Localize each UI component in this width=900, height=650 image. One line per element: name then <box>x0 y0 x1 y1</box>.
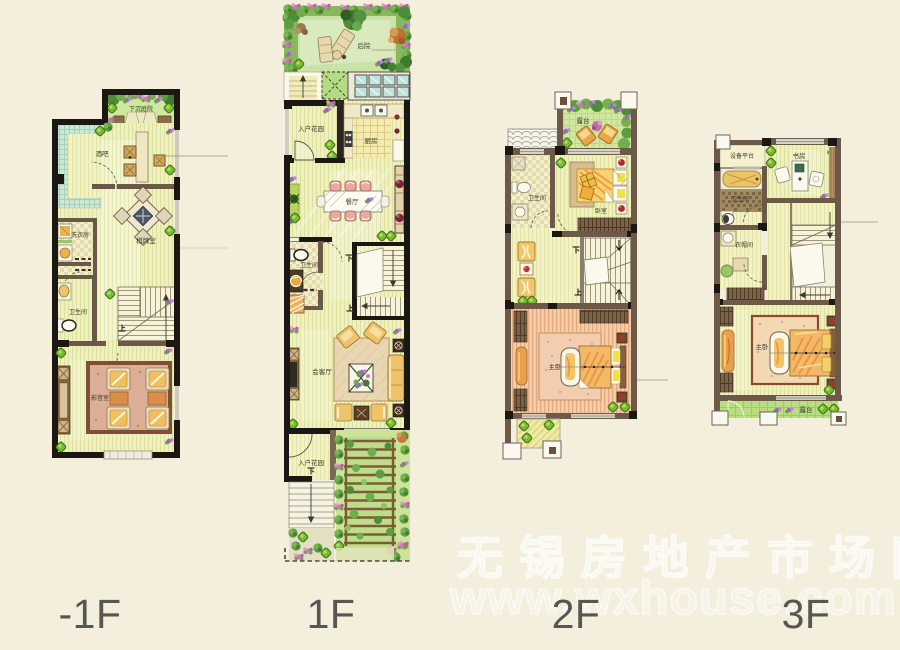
svg-text:厨房: 厨房 <box>365 136 378 145</box>
svg-text:入户花园: 入户花园 <box>298 458 324 467</box>
svg-text:1F: 1F <box>307 591 356 637</box>
svg-text:会客厅: 会客厅 <box>312 367 332 376</box>
svg-text:卫生间: 卫生间 <box>731 195 749 203</box>
svg-text:酒吧: 酒吧 <box>96 150 110 158</box>
svg-text:衣帽间: 衣帽间 <box>735 241 753 249</box>
svg-text:卫生间: 卫生间 <box>300 261 318 269</box>
svg-text:主卧: 主卧 <box>756 342 770 351</box>
svg-text:3F: 3F <box>782 591 831 637</box>
svg-text:影音室: 影音室 <box>91 394 109 402</box>
svg-text:后院: 后院 <box>358 41 372 50</box>
svg-text:主卧: 主卧 <box>549 362 563 371</box>
svg-text:卫生间: 卫生间 <box>69 308 87 316</box>
svg-text:设备平台: 设备平台 <box>730 152 754 160</box>
svg-text:卫生间: 卫生间 <box>528 194 546 202</box>
svg-text:卧室: 卧室 <box>595 207 607 215</box>
svg-text:露台: 露台 <box>577 116 590 125</box>
svg-text:-1F: -1F <box>59 591 122 637</box>
svg-text:2F: 2F <box>552 591 601 637</box>
svg-text:露台: 露台 <box>800 405 813 414</box>
svg-text:书房: 书房 <box>793 151 806 160</box>
svg-text:棋牌室: 棋牌室 <box>136 236 156 245</box>
svg-text:入户花园: 入户花园 <box>298 124 324 133</box>
svg-text:洗衣房: 洗衣房 <box>71 231 89 239</box>
svg-text:下沉庭院: 下沉庭院 <box>129 105 153 113</box>
svg-text:餐厅: 餐厅 <box>346 197 360 206</box>
